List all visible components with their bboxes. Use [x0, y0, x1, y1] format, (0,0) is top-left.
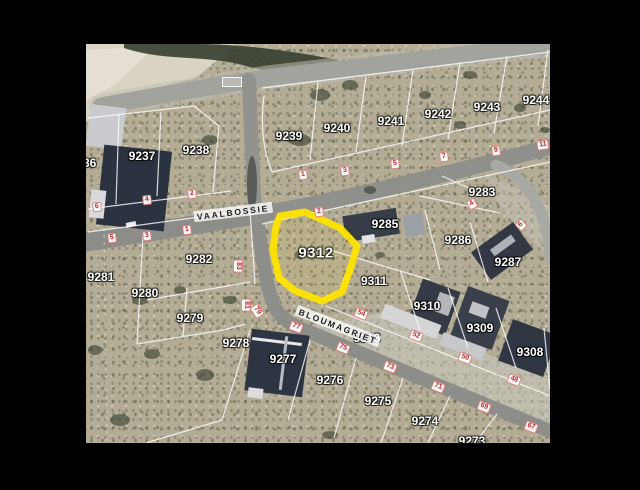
house-number-7: 7: [439, 151, 449, 162]
parcel-label-9276: 9276: [317, 373, 344, 387]
aerial-map[interactable]: 9236923792389239924092419242924392449283…: [86, 44, 550, 443]
parcel-label-9310: 9310: [414, 299, 441, 313]
parcel-label-9237: 9237: [129, 149, 156, 163]
house-number-3: 3: [142, 230, 152, 241]
parcel-label-9273: 9273: [459, 434, 486, 443]
parcel-label-9278: 9278: [223, 336, 250, 350]
house-number-5: 5: [107, 232, 117, 243]
parcel-label-9243: 9243: [474, 100, 501, 114]
house-number-75: 75: [335, 341, 351, 355]
parcel-label-9287: 9287: [495, 255, 522, 269]
house-number-67: 67: [523, 420, 539, 434]
parcel-label-9312: 9312: [298, 245, 333, 262]
parcel-label-9285: 9285: [372, 217, 399, 231]
house-number-6: 6: [514, 218, 527, 231]
house-number-9: 9: [491, 145, 501, 156]
house-number-79: 79: [249, 303, 265, 319]
house-number-50: 50: [457, 351, 473, 365]
house-number-73: 73: [382, 360, 398, 374]
parcel-label-9282: 9282: [186, 252, 213, 266]
house-number-71: 71: [430, 380, 446, 394]
parcel-label-9286: 9286: [445, 233, 472, 247]
street-name-vaalbossie: VAALBOSSIE: [193, 202, 272, 223]
house-number-54: 54: [353, 307, 369, 321]
parcel-label-9236: 9236: [86, 156, 96, 170]
house-number-3: 3: [340, 165, 350, 176]
house-number-4: 4: [142, 194, 152, 205]
house-number-5: 5: [390, 158, 400, 169]
house-number-4: 4: [466, 197, 479, 210]
house-number-2: 2: [314, 206, 324, 217]
parcel-label-9239: 9239: [276, 129, 303, 143]
house-number-2: 2: [187, 188, 197, 199]
house-number-77: 77: [288, 320, 304, 334]
parcel-label-9309: 9309: [467, 321, 494, 335]
parcel-label-9281: 9281: [88, 270, 115, 284]
house-number-83: 83: [233, 260, 243, 273]
parcel-label-9277: 9277: [270, 352, 297, 366]
parcel-label-9311: 9311: [361, 274, 387, 288]
house-number-52: 52: [408, 329, 424, 343]
parcel-label-9242: 9242: [425, 107, 452, 121]
house-number-69: 69: [476, 400, 492, 414]
house-number-11: 11: [536, 139, 550, 151]
parcel-label-9238: 9238: [183, 143, 210, 157]
parcel-label-9244: 9244: [523, 93, 550, 107]
map-labels: 9236923792389239924092419242924392449283…: [86, 44, 550, 443]
parcel-label-9240: 9240: [324, 121, 351, 135]
house-number-48: 48: [506, 373, 522, 387]
parcel-label-9274: 9274: [412, 414, 439, 428]
house-number-1: 1: [182, 224, 192, 235]
parcel-label-9280: 9280: [132, 286, 159, 300]
house-number-6: 6: [92, 201, 102, 212]
parcel-label-9308: 9308: [517, 345, 544, 359]
house-number-1: 1: [298, 169, 308, 180]
parcel-label-9241: 9241: [378, 114, 405, 128]
parcel-label-9279: 9279: [177, 311, 204, 325]
parcel-label-9275: 9275: [365, 394, 392, 408]
screenshot-frame: 9236923792389239924092419242924392449283…: [0, 0, 640, 490]
